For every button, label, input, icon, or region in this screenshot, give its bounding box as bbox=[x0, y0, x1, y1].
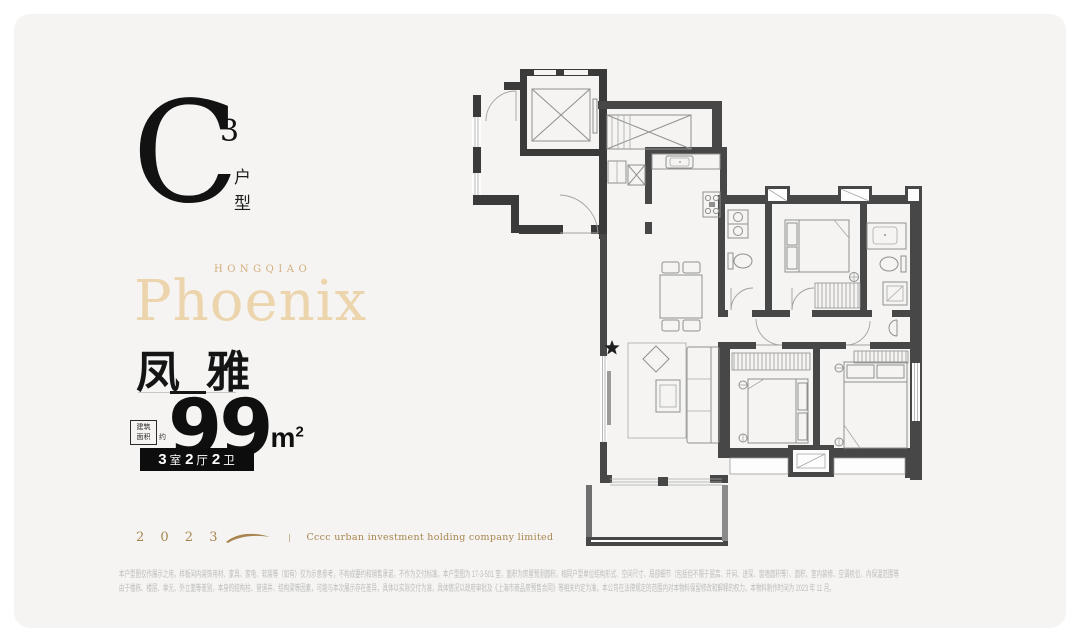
living-room bbox=[604, 340, 719, 443]
sofa-icon bbox=[687, 347, 719, 443]
walls bbox=[473, 69, 922, 483]
bathroom-a bbox=[728, 210, 753, 310]
stove-icon bbox=[703, 192, 720, 217]
unit-logo: C 3 户型 bbox=[132, 84, 282, 244]
bed-icon bbox=[844, 362, 907, 448]
toilet-icon bbox=[728, 253, 752, 269]
bedroom-north bbox=[785, 220, 860, 310]
poster: C 3 户型 HONGQIAO Phoenix 凤雅 建筑 面积 约 99 m2… bbox=[0, 0, 1080, 642]
unit-letter: C bbox=[132, 72, 239, 235]
bed-icon bbox=[748, 379, 808, 443]
brand-name: Phoenix bbox=[134, 275, 394, 328]
balcony bbox=[586, 477, 728, 546]
unit-type-label: 户型 bbox=[228, 168, 253, 220]
wardrobe-icon bbox=[815, 283, 860, 308]
footer-separator bbox=[289, 534, 290, 542]
floor-plan bbox=[460, 55, 952, 563]
floor-lamp-icon bbox=[643, 346, 669, 372]
disclaimer-line1: 本户型图仅作展示之用，样板间内装饰用材、家具、家电、软装等（如有）仅为示意参考，… bbox=[119, 567, 899, 580]
rug bbox=[628, 343, 686, 438]
area-approx-label: 约 bbox=[159, 432, 166, 442]
tv-icon bbox=[607, 371, 611, 425]
nightstand-icon bbox=[850, 273, 859, 282]
poster-card: C 3 户型 HONGQIAO Phoenix 凤雅 建筑 面积 约 99 m2… bbox=[14, 14, 1066, 628]
unit-superscript: 3 bbox=[220, 114, 239, 149]
swoosh-icon bbox=[225, 531, 271, 545]
duct-shaft bbox=[608, 161, 645, 185]
bedroom-south-2 bbox=[835, 321, 908, 448]
pedestal-sink-icon bbox=[889, 320, 897, 336]
disclaimer-line2: 由于楼栋、楼层、单元、外立面等差别，本身的结构柱、管道井、结构梁等因素，可能与本… bbox=[119, 581, 835, 594]
toilet-icon bbox=[880, 256, 906, 272]
area-unit: m2 bbox=[271, 422, 304, 454]
entry-doors bbox=[486, 91, 598, 233]
wardrobe-icon bbox=[854, 351, 908, 363]
coffee-table-icon bbox=[656, 380, 680, 412]
shower-icon bbox=[883, 282, 907, 305]
elevator bbox=[532, 89, 597, 141]
wardrobe-icon bbox=[732, 353, 810, 370]
brand-block: HONGQIAO Phoenix bbox=[134, 264, 394, 328]
dining-area bbox=[660, 262, 702, 331]
dining-table-icon bbox=[660, 275, 702, 318]
footer-year: 2 0 2 3 bbox=[136, 530, 223, 545]
bathroom-b bbox=[867, 223, 907, 336]
area-label-box: 建筑 面积 bbox=[130, 420, 157, 445]
kitchen bbox=[652, 154, 720, 217]
bedroom-south-1 bbox=[732, 319, 810, 443]
stairs bbox=[607, 115, 691, 149]
bed-icon bbox=[785, 220, 849, 272]
spec-badge: 3 室 2 厅 2 卫 bbox=[140, 448, 254, 471]
